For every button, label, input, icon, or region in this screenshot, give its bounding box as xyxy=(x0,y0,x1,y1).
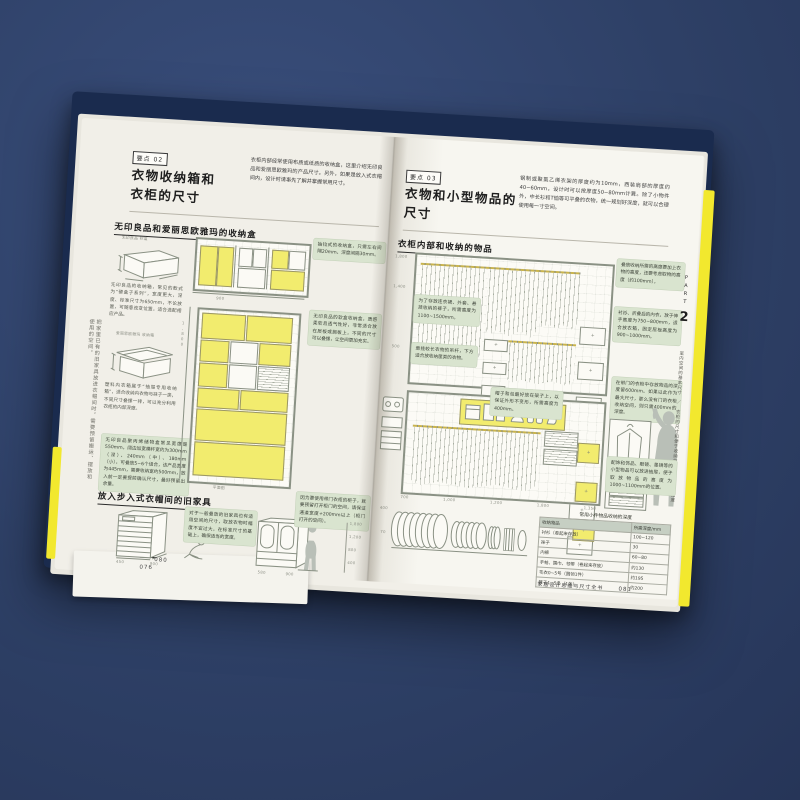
dim-1350: 1,350 xyxy=(584,505,597,511)
section2-note-1: 对于一般叠放的旧家具也有适用空间的尺寸，取放衣物时幅度不宜过大，在标准尺寸的基础… xyxy=(183,507,257,547)
dim-1200: 1,200 xyxy=(490,499,503,505)
closet-elevation-diagram xyxy=(407,252,615,396)
scale-400: 400 xyxy=(347,560,355,565)
box2-caption: 塑料内衣箱属于“抽屉专用收纳箱”，适合收纳内衣物与袜子一类，不同尺寸叠摞一排，可… xyxy=(103,382,177,416)
part-number: 2 xyxy=(676,310,691,326)
left-note-2: 无印良品的软盒收纳盒，质感柔软且透气性好，非常适合放在层板或搁板上，不同的尺寸可… xyxy=(308,310,382,350)
wardrobe-section-diagram xyxy=(187,307,302,489)
left-intro: 衣柜内部经常使用布质或纸质的收纳盒，这里介绍无印良品和爱丽思欧雅玛的产品尺寸。另… xyxy=(249,156,382,191)
open-book: 076 把家里已有的旧家具放进衣帽间时，需要预留搬运、摆放和使用的空间。 要点 … xyxy=(58,118,704,600)
roll-dim-70: 70 xyxy=(380,529,386,534)
right-intro: 钢制或聚氯乙烯衣架的厚度约为10mm，西装肩部的厚度约40~60mm，设计时可以… xyxy=(518,175,670,220)
row6-value: 约200 xyxy=(627,583,667,595)
chest-of-drawers-drawing xyxy=(108,506,181,562)
left-page-number: 080 xyxy=(154,557,168,564)
dim-1800: 1,800 xyxy=(537,502,550,508)
left-note-1: 抽拉式的收纳盒，只需左右间隔20mm、深度间隔30mm。 xyxy=(313,238,386,263)
d1-note-left-1: 为了存放连衣裙、外套、悬挂收纳的裤子，所需高度为1100~1500mm。 xyxy=(413,294,481,326)
d1-note-right-1: 叠放收纳所需的高度要加上衣物的高度，还要考虑取物的高度（约100mm）。 xyxy=(616,259,686,291)
d1-scale-1800: 1,800 xyxy=(395,253,408,259)
topic-badge-03: 要点 03 xyxy=(406,170,441,185)
wardrobe-dim-depth: 580 xyxy=(257,569,265,574)
scale-800: 800 xyxy=(348,547,356,552)
roll-dim-400: 400 xyxy=(380,505,388,510)
shelf-unit-diagram xyxy=(193,237,312,298)
right-page: 要点 03 衣物和小型物品的 尺寸 钢制或聚氯乙烯衣架的厚度约为10mm，西装肩… xyxy=(367,137,704,600)
storage-box-drawing-2 xyxy=(107,336,182,384)
left-page: 把家里已有的旧家具放进衣帽间时，需要预留搬运、摆放和使用的空间。 要点 02 衣… xyxy=(58,118,395,581)
plan-view-label: 平面图 xyxy=(212,484,225,491)
rolled-clothes-drawing xyxy=(389,503,532,561)
d2-note-middle: 帽子和包最好放在架子上，以保证外形不变形，所需高度为400mm。 xyxy=(490,387,564,419)
margin-note: 把家里已有的旧家具放进衣帽间时，需要预留搬运、摆放和使用的空间。 xyxy=(79,319,103,485)
shelf-width-dim: 900 xyxy=(216,295,224,300)
topic-badge-02: 要点 02 xyxy=(132,151,167,166)
scale-1800: 1,800 xyxy=(350,521,363,527)
chest-dim-depth: 450 xyxy=(116,559,124,564)
scale-1200: 1,200 xyxy=(349,534,362,540)
storage-box-drawing-1 xyxy=(113,240,187,284)
suitcase-shelf-drawing xyxy=(379,395,404,454)
part-tab: PART 2 xyxy=(676,275,693,326)
dim-1000: 1,000 xyxy=(443,497,456,503)
d1-note-right-2: 衬衫、折叠后的内衣，放于伸手高度为750~800mm，适合放衣箱，固定层板高度为… xyxy=(612,307,682,346)
box1-caption: 无印良品的收纳箱，常见的款式为“硬盒子系列”，宽度更大，深度、标准尺寸为650m… xyxy=(109,282,183,323)
part-label: PART xyxy=(682,275,690,307)
d1-note-left-2: 悬挂较长衣物的吊杆，下方适合放收纳筐类的衣物。 xyxy=(411,342,478,367)
wardrobe-dim-width: 900 xyxy=(285,571,293,576)
footer-book-title: 家居设计思维与尺寸全书 xyxy=(537,581,603,591)
d2-note-right-2: 配饰和饰品、眼镜、墨镜等的小型物品可以放进抽屉，便于取放物品的高度为1000~1… xyxy=(605,457,677,497)
right-page-number: 081 xyxy=(618,586,632,593)
d1-scale-500: 500 xyxy=(392,343,400,348)
dim-700: 700 xyxy=(400,494,408,499)
d1-scale-1400: 1,400 xyxy=(393,283,406,289)
